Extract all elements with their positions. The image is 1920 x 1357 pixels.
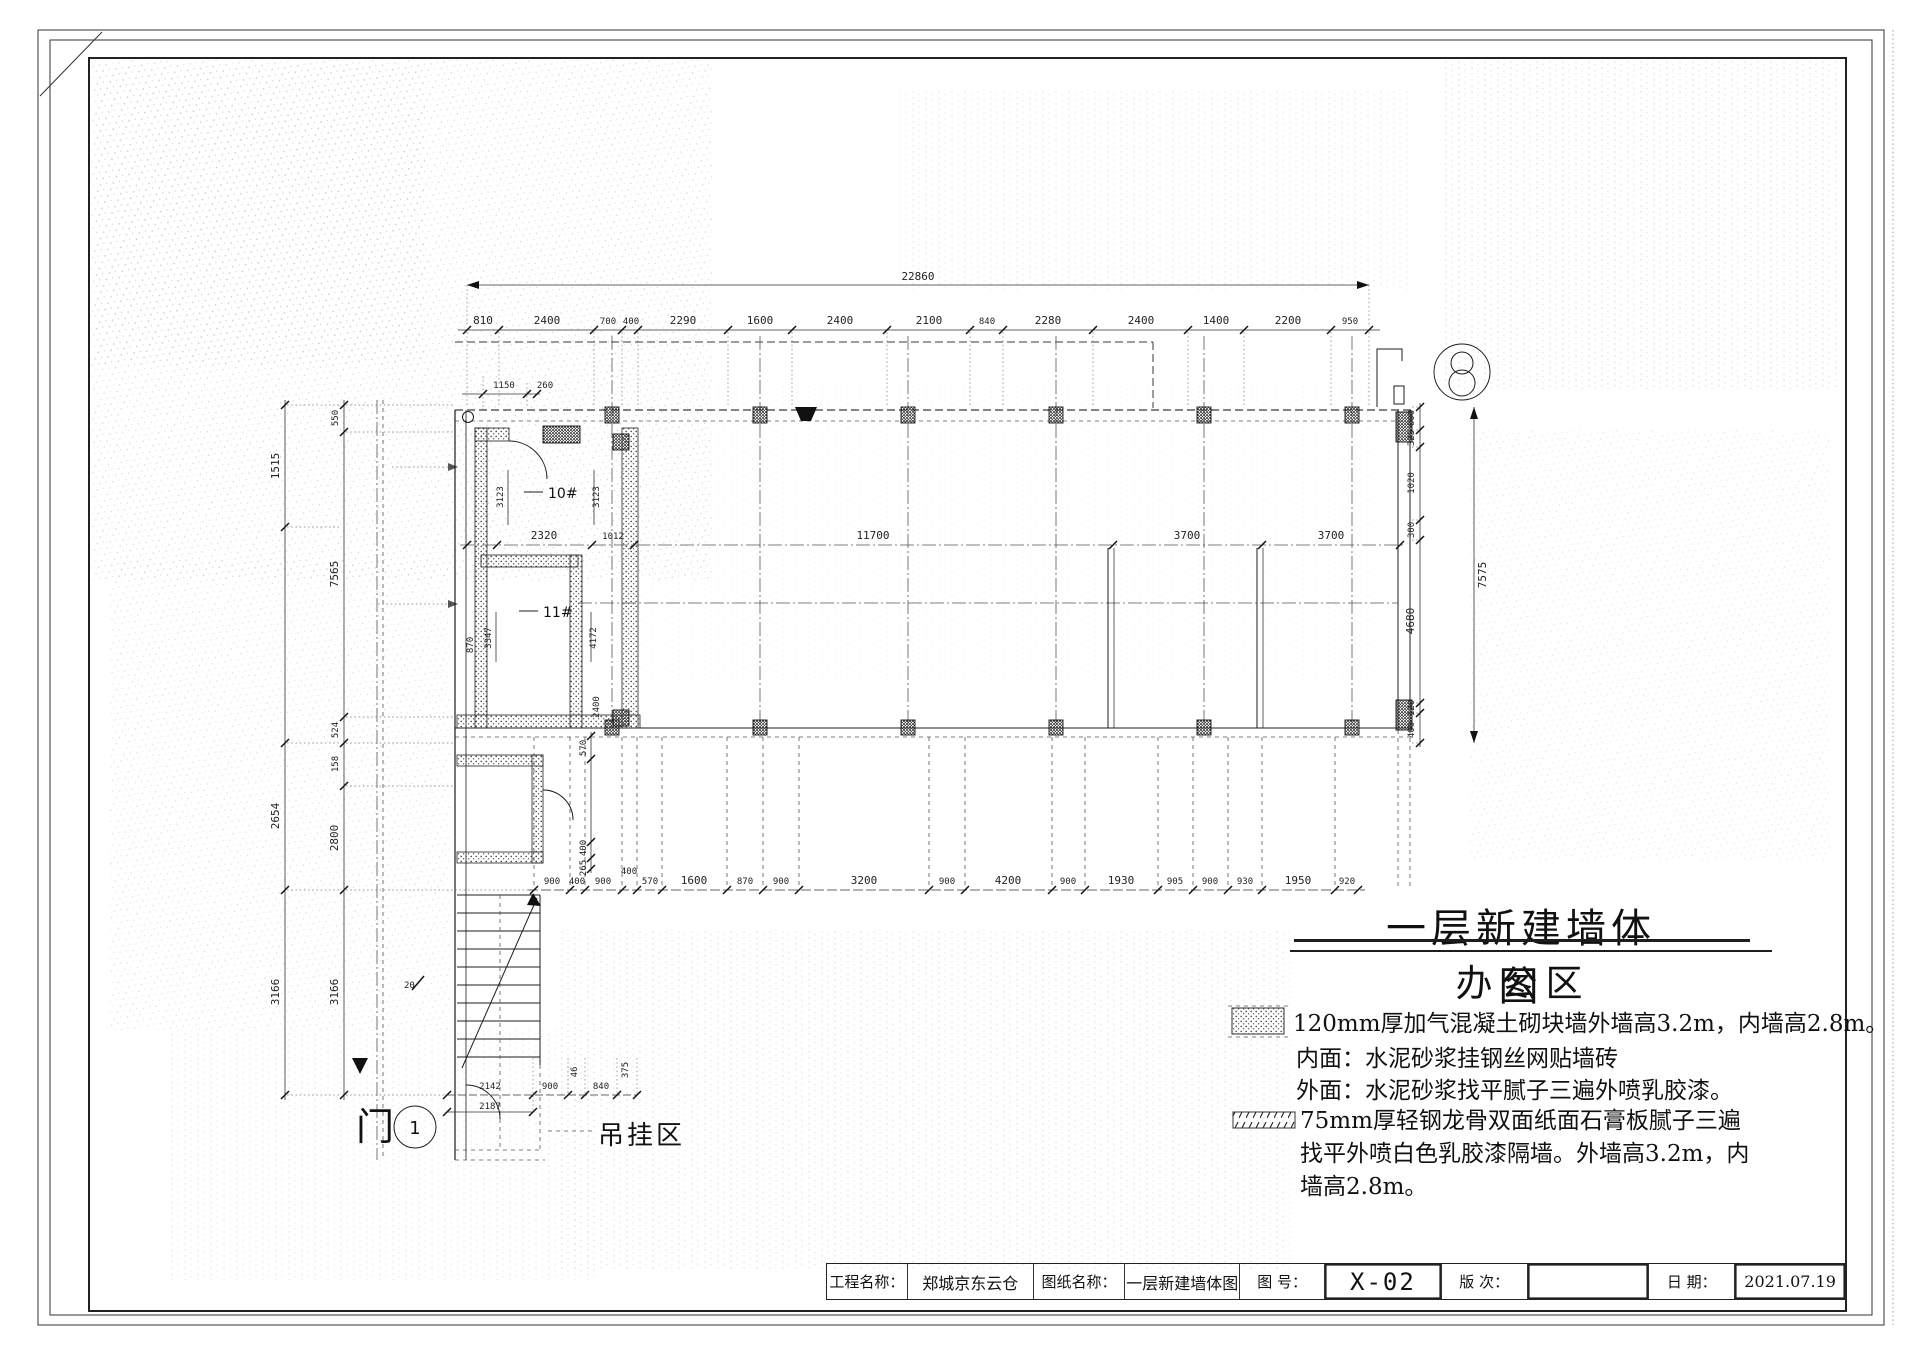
project-name-label: 工程名称： (827, 1264, 908, 1299)
dim-label: 930 (1237, 877, 1253, 887)
dim-label: 1020 (1407, 472, 1417, 494)
dim-label: 325 (1407, 430, 1417, 446)
bottom-dimension-chain: 900 400 900 400 570 1600 870 900 3200 90… (528, 867, 1365, 894)
lower-zone-lines (534, 737, 1335, 886)
dim-label: 3700 (1174, 529, 1201, 542)
dim-label: 900 (544, 877, 560, 887)
dim-label: 900 (542, 1082, 558, 1092)
dim-label: 120 (1407, 700, 1417, 716)
note1-line3: 外面：水泥砂浆找平腻子三遍外喷乳胶漆。 (1296, 1075, 1733, 1108)
date-value: 2021.07.19 (1735, 1264, 1845, 1299)
dim-label: 300 (1407, 522, 1417, 538)
dim-label: 400 (621, 867, 637, 877)
dim-label: 950 (1342, 317, 1358, 327)
dim-label: 400 (1407, 722, 1417, 738)
scanned-floor-plan-sheet: { "sheet": { "main_title": "一层新建墙体图", "s… (0, 0, 1920, 1357)
dim-label: 920 (1339, 877, 1355, 887)
dim-label: 840 (593, 1082, 609, 1092)
dim-label: 4172 (589, 627, 599, 649)
dim-label: 570 (642, 877, 658, 887)
dim-label: 4200 (995, 874, 1022, 887)
masonry-hatch-swatch (1232, 1008, 1284, 1034)
drawing-number-value: X-02 (1325, 1264, 1442, 1299)
dim-label: 700 (600, 317, 616, 327)
dim-label: 265 (579, 860, 589, 876)
dim-label: 3166 (269, 979, 282, 1006)
lower-left-room (457, 755, 573, 863)
dim-label: 7575 (1476, 562, 1489, 589)
dim-label: 2400 (827, 314, 854, 327)
dim-label: 870 (466, 637, 476, 653)
dim-label: 7565 (328, 561, 341, 588)
dim-label: 905 (1167, 877, 1183, 887)
door-swing-arc (543, 790, 573, 820)
dim-label: 2200 (1275, 314, 1302, 327)
room-tag: 10# (548, 486, 578, 502)
dim-label: 2800 (328, 825, 341, 852)
drawing-name-label: 图纸名称： (1034, 1264, 1126, 1299)
project-name-value: 郑城京东云仓 (908, 1264, 1034, 1299)
dim-label: 4680 (1404, 608, 1417, 635)
date-label: 日 期： (1649, 1264, 1735, 1299)
dim-label: 1012 (602, 532, 624, 542)
dim-label: 900 (773, 877, 789, 887)
drawing-number-label: 图 号： (1240, 1264, 1325, 1299)
title-underline-2 (1290, 950, 1772, 952)
dim-label: 900 (939, 877, 955, 887)
dim-label: 600 (1407, 410, 1417, 426)
note1-line1: 120mm厚加气混凝土砌块墙外墙高3.2m，内墙高2.8m。 (1293, 1008, 1888, 1041)
right-dimension-chain: 600 325 1020 300 4680 120 400 (1404, 403, 1424, 747)
dim-label: 2142 (479, 1082, 501, 1092)
revision-value (1528, 1264, 1650, 1299)
note2-line3: 墙高2.8m。 (1300, 1171, 1427, 1204)
dim-label: 11700 (856, 529, 889, 542)
dim-label: 2400 (592, 696, 602, 718)
note2-line2: 找平外喷白色乳胶漆隔墙。外墙高3.2m，内 (1300, 1138, 1749, 1171)
dim-label: 260 (537, 381, 553, 391)
dim-label: 1600 (747, 314, 774, 327)
dim-label: 900 (1060, 877, 1076, 887)
dim-label: 400 (579, 840, 589, 856)
dim-label: 1950 (1285, 874, 1312, 887)
dim-label: 3166 (328, 979, 341, 1006)
dim-label: 375 (621, 1062, 631, 1078)
dim-label: 158 (331, 756, 341, 772)
dim-label: 2280 (1035, 314, 1062, 327)
area-label: 吊挂区 (598, 1121, 685, 1151)
dim-label: 2187 (479, 1102, 501, 1112)
dim-label: 1930 (1108, 874, 1135, 887)
dim-label: 2400 (534, 314, 561, 327)
dim-label: 2100 (916, 314, 943, 327)
dim-label: 400 (569, 877, 585, 887)
dim-label: 3700 (1318, 529, 1345, 542)
dim-label: 2290 (670, 314, 697, 327)
dim-label: 1515 (269, 453, 282, 480)
revision-label: 版 次： (1442, 1264, 1528, 1299)
dim-label: 2320 (531, 529, 558, 542)
dim-label: 840 (979, 317, 995, 327)
dim-label: 400 (623, 317, 639, 327)
dim-label: 810 (473, 314, 493, 327)
dim-label: 870 (737, 877, 753, 887)
dim-label: 3347 (484, 627, 494, 649)
note2-line1: 75mm厚轻钢龙骨双面纸面石膏板腻子三遍 (1300, 1105, 1741, 1138)
dim-label: 550 (331, 410, 341, 426)
dim-label: 1400 (1203, 314, 1230, 327)
dim-label: 3123 (592, 486, 602, 508)
title-underline (1294, 939, 1750, 942)
drawing-subtitle: 办公区 (1448, 953, 1598, 1007)
dim-label: 1150 (493, 381, 515, 391)
dim-label: 46 (570, 1067, 580, 1078)
dim-label: 3123 (496, 486, 506, 508)
dim-label: 524 (331, 722, 341, 738)
dim-label: 2400 (1128, 314, 1155, 327)
dim-label: 1600 (681, 874, 708, 887)
door-character: 门 (356, 1105, 394, 1149)
title-block: 工程名称： 郑城京东云仓 图纸名称： 一层新建墙体图 图 号： X-02 版 次… (826, 1263, 1846, 1300)
door-number: 1 (409, 1118, 420, 1139)
room-tag: 11# (543, 605, 573, 621)
drywall-hatch-swatch (1233, 1112, 1295, 1128)
dim-label: 22860 (901, 270, 934, 283)
dim-label: 900 (1202, 877, 1218, 887)
drawing-name-value: 一层新建墙体图 (1125, 1264, 1240, 1299)
note1-line2: 内面：水泥砂浆挂钢丝网贴墙砖 (1296, 1043, 1618, 1076)
dim-label: 900 (595, 877, 611, 887)
dim-label: 570 (579, 740, 589, 756)
dim-label: 3200 (851, 874, 878, 887)
dim-label: 2654 (269, 802, 282, 829)
